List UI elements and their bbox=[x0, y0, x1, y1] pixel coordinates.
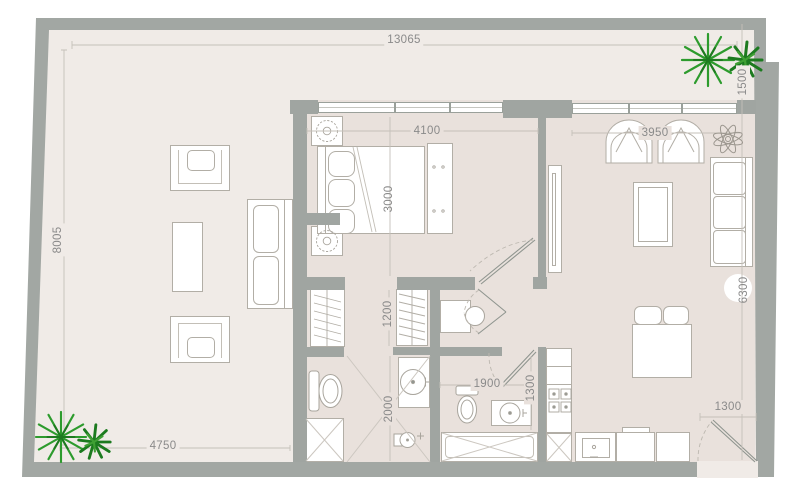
service-shaft bbox=[546, 433, 572, 462]
sofa bbox=[710, 157, 753, 267]
dimension-label: 8005 bbox=[51, 224, 65, 257]
coffee-table bbox=[633, 182, 673, 247]
wall bbox=[737, 100, 756, 114]
terrace-sofa bbox=[247, 199, 293, 309]
window bbox=[572, 103, 737, 114]
wall bbox=[503, 100, 572, 118]
vanity-table bbox=[440, 300, 471, 333]
wall bbox=[430, 347, 502, 356]
countertop-board bbox=[622, 427, 650, 433]
dimension-label: 13065 bbox=[384, 33, 423, 47]
bathtub bbox=[441, 432, 538, 462]
terrace-armchair bbox=[170, 316, 230, 363]
wall bbox=[538, 347, 546, 462]
terrace-coffee-table bbox=[172, 222, 203, 292]
tv-console bbox=[548, 165, 562, 273]
floor-plan: 13065 8005 4750 1500 4100 3000 3950 6300… bbox=[0, 0, 800, 495]
dimension-label: 1300 bbox=[712, 400, 745, 414]
wall bbox=[393, 347, 433, 355]
kitchen-sink-unit bbox=[575, 432, 616, 462]
pillow bbox=[328, 151, 355, 177]
dimension-label: 1200 bbox=[381, 298, 395, 331]
window bbox=[318, 102, 503, 113]
sofa-bed-pillow bbox=[663, 306, 689, 325]
dimension-label: 4100 bbox=[411, 124, 444, 138]
kitchen-cabinet bbox=[546, 366, 572, 385]
dimension-label: 4750 bbox=[147, 439, 180, 453]
wall bbox=[293, 213, 340, 225]
wardrobe bbox=[310, 289, 345, 347]
bathroom-sink-counter bbox=[398, 357, 430, 408]
wall bbox=[430, 277, 440, 462]
entry-opening bbox=[697, 461, 758, 478]
dimension-label: 6300 bbox=[737, 274, 751, 307]
wardrobe bbox=[396, 289, 428, 346]
dimension-label: 3950 bbox=[639, 126, 672, 140]
wall bbox=[293, 277, 345, 290]
wall bbox=[293, 347, 344, 357]
dimension-label: 1900 bbox=[471, 377, 504, 391]
terrace-armchair bbox=[170, 145, 230, 191]
kitchen-counter bbox=[616, 432, 655, 462]
pillow bbox=[328, 179, 355, 207]
dimension-label: 1500 bbox=[736, 66, 750, 99]
sofa-bed bbox=[632, 324, 692, 378]
kitchen-cabinet bbox=[546, 348, 572, 367]
wall bbox=[538, 117, 546, 283]
shower-tray bbox=[305, 418, 344, 462]
dimension-label: 1300 bbox=[524, 372, 538, 405]
dimension-label: 2000 bbox=[382, 393, 396, 426]
dimension-label: 3000 bbox=[382, 183, 396, 216]
kitchen-counter bbox=[656, 432, 690, 462]
stove bbox=[546, 384, 572, 433]
bush-plant-icon bbox=[72, 421, 114, 463]
dresser bbox=[427, 143, 453, 234]
nightstand bbox=[311, 116, 343, 146]
sofa-bed-pillow bbox=[634, 306, 662, 325]
